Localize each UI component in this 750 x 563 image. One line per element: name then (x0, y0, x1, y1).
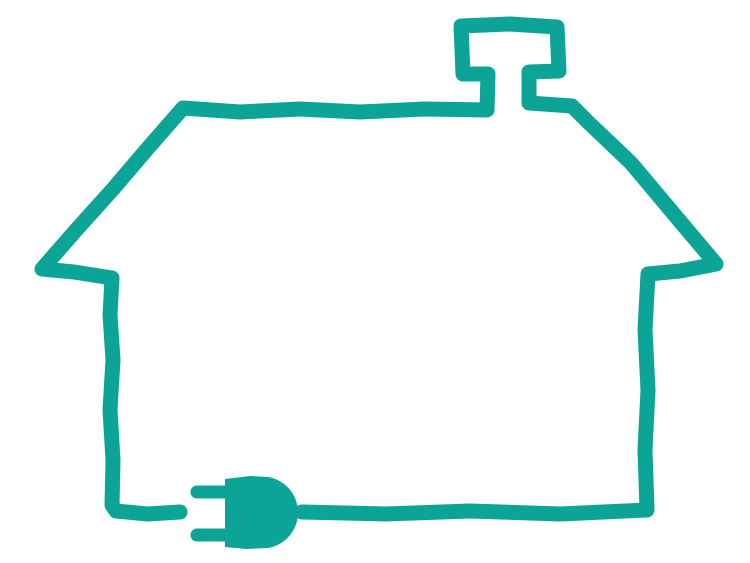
house-outline-path (42, 24, 716, 514)
house-plug-illustration (0, 0, 750, 563)
plug-body (225, 476, 298, 549)
house-plug-icon (0, 0, 750, 563)
